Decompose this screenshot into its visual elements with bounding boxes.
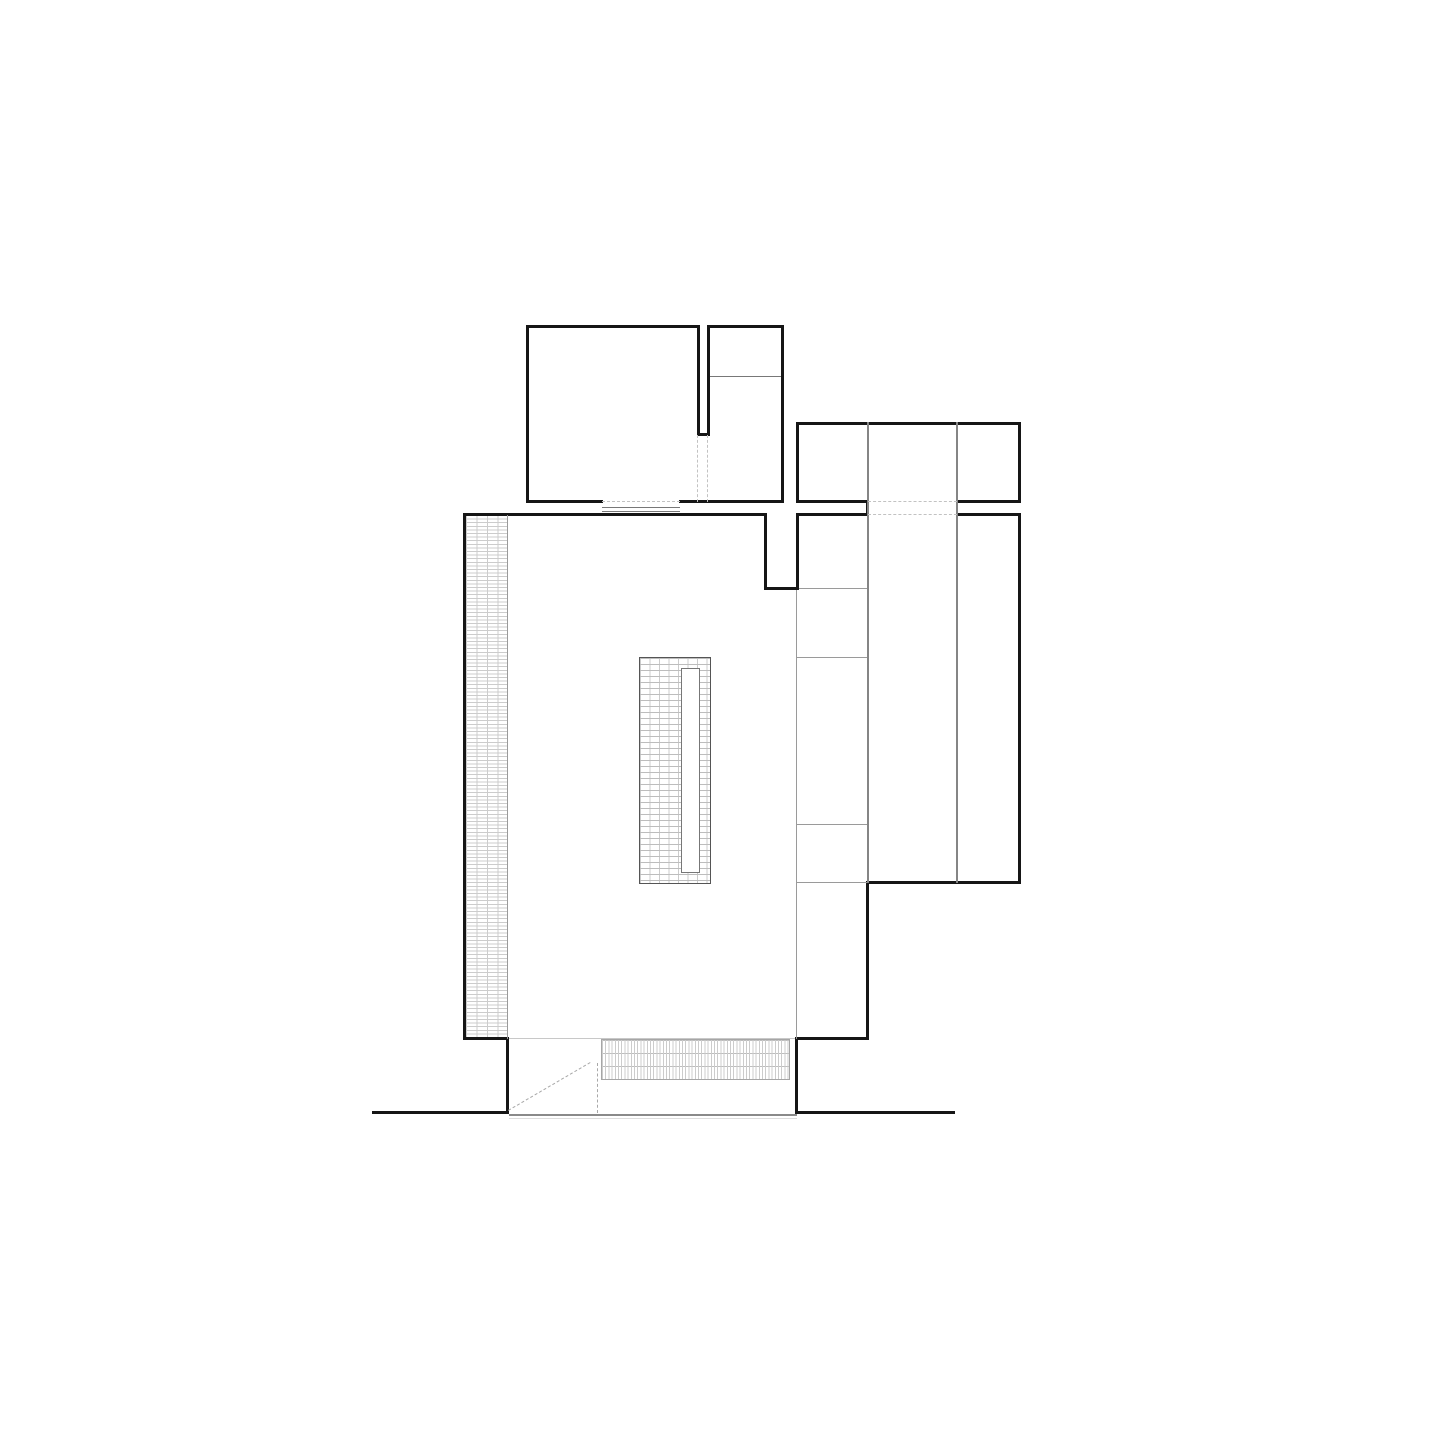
entry-west-jamb [506,1037,509,1114]
room-nw-divider-line [710,376,781,377]
block-ne-east-wall [1018,422,1021,503]
room-nw-slot-west-wall [697,325,700,435]
room-nw-south-wall-west [526,500,603,503]
room-nw-east-wall [781,325,784,503]
wing-partition-589 [799,588,867,589]
notch-west-wall [764,513,767,590]
room-nw-south-wall-east [679,500,784,503]
west-wall-foot [463,1037,509,1040]
wing-south-wall [866,881,1021,884]
door-leaf-dash [597,1063,598,1113]
north-door-sill-lower [602,511,680,512]
east-wall-lower [866,881,869,1040]
ground-line-west [372,1111,509,1114]
ground-line-east [797,1111,955,1114]
north-door-sill-upper [602,507,680,508]
main-top-wall [463,513,767,516]
passage-opening-dash-top [868,501,957,502]
west-wall-hatch [466,515,508,1039]
wing-column-line-east [956,422,958,883]
slot-opening-dash-west [697,435,698,502]
main-top-wall-east-2 [956,513,1021,516]
room-nw-west-wall [526,325,529,503]
room-nw-slot-end-wall [697,433,710,436]
room-nw-top-wall-west [526,325,700,328]
main-west-wall [463,513,466,1040]
wing-east-wall [1018,513,1021,884]
block-ne-south-wall-west [796,500,868,503]
entry-floor-hatch [601,1039,790,1080]
hall-partition-line [796,590,797,1039]
block-ne-west-wall [796,422,799,503]
wing-partition-658 [797,657,867,658]
wing-column-line-west [867,422,869,883]
south-floor-line [509,1038,795,1039]
main-top-wall-east-1 [796,513,868,516]
entry-threshold [509,1114,797,1116]
west-wall-inner-face [507,515,508,1039]
island-hatch [639,657,711,884]
entry-east-jamb [795,1037,798,1114]
main-south-wall-east [795,1037,869,1040]
room-opening-dash [602,501,680,502]
block-ne-top-wall [796,422,1021,425]
door-swing-dash [508,1062,591,1111]
notch-south-wall [764,587,799,590]
island-slot [681,668,700,873]
entry-threshold-outer [509,1118,797,1119]
wing-partition-883 [797,882,867,883]
wing-partition-825 [797,824,867,825]
room-nw-slot-east-wall [707,325,710,435]
floor-plan [0,0,1440,1440]
slot-opening-dash-east [707,435,708,502]
notch-east-wall [796,513,799,590]
passage-opening-dash-bot [868,514,957,515]
block-ne-south-wall-east [956,500,1021,503]
room-nw-top-wall-east [707,325,784,328]
